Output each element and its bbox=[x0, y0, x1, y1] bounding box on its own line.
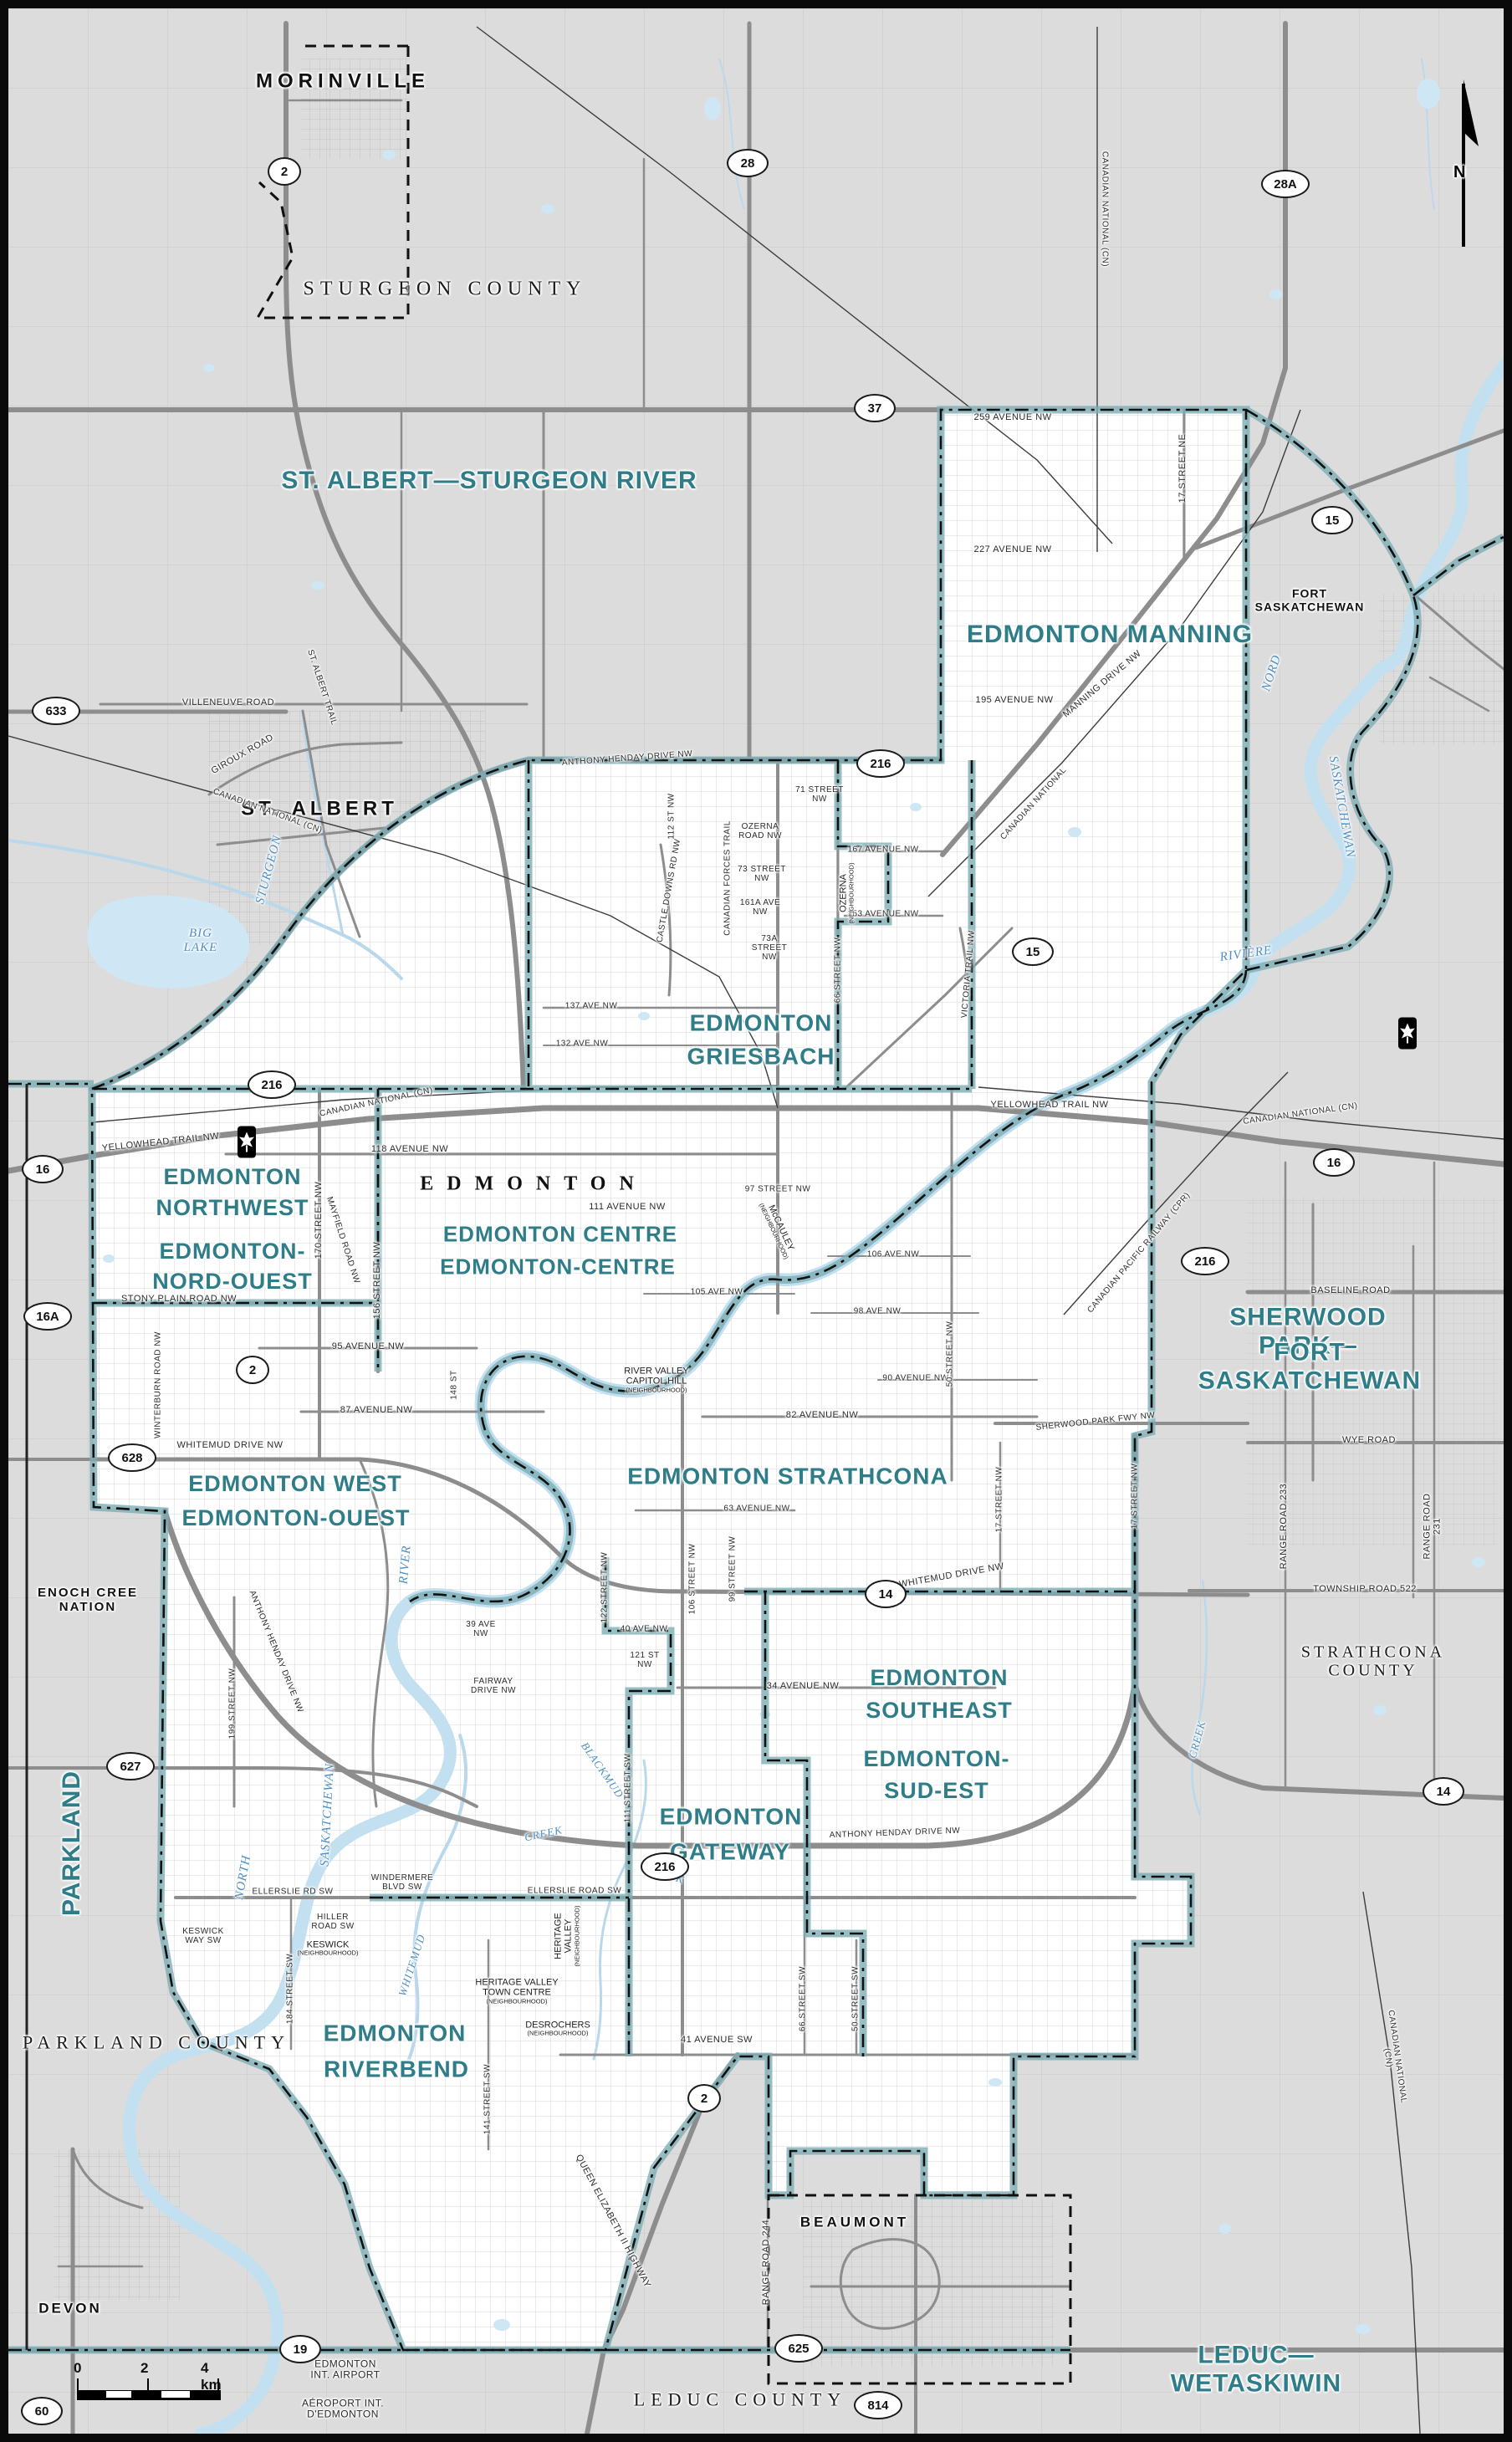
rail-label: CANADIAN NATIONAL bbox=[999, 766, 1068, 842]
district-label: EDMONTON CENTRE bbox=[443, 1222, 677, 1246]
street-label: WHITEMUD DRIVE NW bbox=[898, 1561, 1004, 1590]
neighbourhood-suffix: (NEIGHBOURHOOD) bbox=[525, 2031, 590, 2037]
district-label: RIVERBEND bbox=[324, 2056, 469, 2082]
highway-shield: 16 bbox=[22, 1155, 64, 1183]
street-label: 106 AVE NW bbox=[867, 1249, 920, 1259]
north-label: N bbox=[1453, 163, 1465, 181]
street-label: 66 STREET SW bbox=[798, 1966, 807, 2031]
district-label: EDMONTON MANNING bbox=[967, 621, 1253, 649]
street-label: QUEEN ELIZABETH II HIGHWAY bbox=[574, 2153, 653, 2290]
nbhd-label: OZERNA(NEIGHBOURHOOD) bbox=[839, 863, 856, 924]
scale-tick-0: 0 bbox=[74, 2360, 81, 2377]
district-label: ST. ALBERT—STURGEON RIVER bbox=[281, 467, 697, 495]
city-label: MORINVILLE bbox=[256, 71, 430, 94]
street-label: 170 STREET NW bbox=[314, 1182, 324, 1259]
street-label: 111 STREET SW bbox=[623, 1754, 632, 1823]
street-label: RANGE ROAD 233 bbox=[1279, 1484, 1289, 1569]
street-label: 17 STREET NW bbox=[1130, 1464, 1139, 1530]
district-label: SUD-EST bbox=[884, 1778, 989, 1803]
nbhd-label: RIVER VALLEY CAPITOL HILL(NEIGHBOURHOOD) bbox=[624, 1366, 688, 1393]
scale-tick-mark bbox=[147, 2378, 149, 2390]
street-label: ELLERSLIE ROAD SW bbox=[528, 1886, 621, 1895]
highway-shield: 2 bbox=[268, 157, 301, 186]
street-label: GIROUX ROAD bbox=[210, 733, 276, 777]
street-label: 199 STREET NW bbox=[227, 1668, 237, 1740]
street-label: FAIRWAY DRIVE NW bbox=[471, 1677, 516, 1695]
street-label: OZERNA ROAD NW bbox=[738, 822, 782, 840]
water-label: RIVIÈRE bbox=[1219, 943, 1274, 964]
street-label: ANTHONY HENDAY DRIVE NW bbox=[247, 1589, 304, 1714]
street-label: 112 ST NW bbox=[667, 793, 676, 839]
city-label: EDMONTON bbox=[420, 1173, 647, 1196]
highway-shield: 15 bbox=[1012, 937, 1054, 966]
street-label: 66 STREET NW bbox=[833, 937, 842, 1004]
street-label: 259 AVENUE NW bbox=[973, 412, 1051, 422]
street-label: 17 STREET NW bbox=[994, 1467, 1004, 1533]
highway-shield: 14 bbox=[865, 1580, 907, 1608]
street-label: EDMONTON INT. AIRPORT bbox=[310, 2359, 380, 2382]
park-icon bbox=[237, 1126, 257, 1163]
district-label: EDMONTON bbox=[163, 1164, 301, 1189]
water-label: SASKATCHEWAN bbox=[318, 1763, 337, 1867]
scale-bar: 0 2 4 km bbox=[74, 2360, 232, 2412]
highway-shield: 216 bbox=[641, 1852, 689, 1881]
street-label: ST. ALBERT TRAIL bbox=[305, 648, 339, 726]
water-label: BIG LAKE bbox=[184, 927, 218, 955]
street-label: 141 STREET SW bbox=[483, 2064, 492, 2134]
district-label: EDMONTON WEST bbox=[188, 1471, 402, 1496]
highway-shield: 628 bbox=[108, 1443, 156, 1472]
district-label: EDMONTON-CENTRE bbox=[440, 1254, 676, 1279]
street-label: BASELINE ROAD bbox=[1310, 1285, 1390, 1295]
street-label: 34 AVENUE NW bbox=[767, 1681, 840, 1691]
street-label: RANGE ROAD 244 bbox=[761, 2220, 771, 2305]
district-label: PARKLAND bbox=[58, 1770, 86, 1916]
street-label: 122 STREET NW bbox=[600, 1552, 609, 1623]
nbhd-label: KESWICK(NEIGHBOURHOOD) bbox=[298, 1940, 359, 1958]
rail-label: CANADIAN NATIONAL (CN) bbox=[319, 1086, 434, 1119]
map-canvas: ST. ALBERT—STURGEON RIVEREDMONTON MANNIN… bbox=[0, 0, 1512, 2442]
highway-shield: 625 bbox=[774, 2334, 823, 2363]
street-label: 87 AVENUE NW bbox=[340, 1405, 413, 1415]
street-label: MANNING DRIVE NW bbox=[1061, 648, 1143, 719]
scale-tick-mark bbox=[217, 2378, 219, 2390]
street-label: 106 STREET NW bbox=[687, 1544, 697, 1615]
street-label: 73 STREET NW bbox=[738, 865, 786, 883]
nbhd-label: HERITAGE VALLEY TOWN CENTRE(NEIGHBOURHOO… bbox=[475, 1977, 558, 2005]
district-label: GRIESBACH bbox=[687, 1043, 835, 1069]
highway-shield: 216 bbox=[856, 749, 905, 778]
street-label: KESWICK WAY SW bbox=[182, 1927, 224, 1945]
nbhd-label: McCAULEY(NEIGHBOURHOOD) bbox=[757, 1198, 799, 1261]
highway-shield: 60 bbox=[21, 2397, 63, 2425]
street-label: 132 AVE NW bbox=[556, 1039, 609, 1048]
neighbourhood-suffix: (NEIGHBOURHOOD) bbox=[574, 1906, 580, 1967]
neighbourhood-suffix: (NEIGHBOURHOOD) bbox=[475, 1998, 558, 2005]
rail-label: CANADIAN NATIONAL (CN) bbox=[1243, 1101, 1358, 1126]
street-label: 153 AVENUE NW bbox=[847, 909, 918, 918]
nbhd-label: HERITAGE VALLEY(NEIGHBOURHOOD) bbox=[553, 1906, 580, 1967]
street-label: RANGE ROAD 231 bbox=[1423, 1491, 1443, 1562]
scale-tick-2: 2 bbox=[140, 2360, 148, 2377]
water-label: NORTH bbox=[232, 1854, 254, 1901]
street-label: 137 AVE NW bbox=[565, 1001, 618, 1010]
street-label: 156 STREET NW bbox=[372, 1242, 382, 1320]
street-label: ANTHONY HENDAY DRIVE NW bbox=[562, 749, 693, 768]
street-label: 97 STREET NW bbox=[745, 1184, 811, 1193]
street-label: CASTLE DOWNS RD NW bbox=[656, 838, 683, 943]
highway-shield: 2 bbox=[687, 2084, 721, 2112]
county-label: STURGEON COUNTY bbox=[304, 278, 587, 301]
street-label: SHERWOOD PARK FWY NW bbox=[1035, 1411, 1156, 1433]
district-label: SOUTHEAST bbox=[866, 1698, 1013, 1723]
highway-shield: 633 bbox=[32, 697, 80, 725]
street-label: 99 STREET NW bbox=[728, 1536, 737, 1602]
district-label: EDMONTON bbox=[660, 1803, 803, 1829]
street-label: 98 AVE NW bbox=[854, 1306, 902, 1316]
street-label: 50 STREET NW bbox=[945, 1321, 954, 1387]
highway-shield: 15 bbox=[1311, 506, 1353, 534]
street-label: 40 AVE NW bbox=[621, 1624, 668, 1633]
county-label: LEDUC COUNTY bbox=[634, 2390, 847, 2411]
highway-shield: 216 bbox=[248, 1070, 296, 1099]
street-label: 148 ST bbox=[449, 1370, 458, 1399]
highway-shield: 814 bbox=[854, 2391, 902, 2419]
district-label: EDMONTON- bbox=[160, 1239, 306, 1264]
street-label: 90 AVENUE NW bbox=[882, 1373, 948, 1382]
street-label: 184 STREET SW bbox=[285, 1954, 294, 2024]
highway-shield: 28 bbox=[727, 149, 769, 177]
street-label: 111 AVENUE NW bbox=[589, 1202, 665, 1212]
street-label: MAYFIELD ROAD NW bbox=[324, 1196, 361, 1285]
city-label: DEVON bbox=[38, 2300, 101, 2316]
district-label: EDMONTON bbox=[870, 1665, 1008, 1690]
street-label: 41 AVENUE SW bbox=[681, 2035, 753, 2045]
county-label: STRATHCONA COUNTY bbox=[1301, 1643, 1445, 1681]
highway-shield: 28A bbox=[1261, 170, 1310, 198]
highway-shield: 2 bbox=[236, 1356, 269, 1384]
street-label: STONY PLAIN ROAD NW bbox=[121, 1294, 237, 1304]
scale-bar-strip bbox=[77, 2390, 221, 2400]
street-label: ELLERSLIE RD SW bbox=[253, 1887, 334, 1896]
district-label: EDMONTON- bbox=[864, 1746, 1010, 1771]
label-layer: ST. ALBERT—STURGEON RIVEREDMONTON MANNIN… bbox=[8, 8, 1504, 2434]
street-label: WYE ROAD bbox=[1342, 1435, 1396, 1445]
highway-shield: 19 bbox=[279, 2335, 321, 2363]
scale-tick-4: 4 km bbox=[201, 2360, 232, 2393]
street-label: CANADIAN FORCES TRAIL bbox=[723, 820, 732, 936]
district-label: GATEWAY bbox=[670, 1838, 790, 1864]
highway-shield: 627 bbox=[106, 1752, 155, 1780]
street-label: HILLER ROAD SW bbox=[311, 1913, 354, 1931]
street-label: 82 AVENUE NW bbox=[786, 1410, 859, 1420]
water-label: STURGEON bbox=[253, 834, 285, 906]
district-label: LEDUC—WETASKIWIN bbox=[1132, 2341, 1380, 2397]
scale-bar-segment bbox=[161, 2391, 190, 2398]
district-label: EDMONTON STRATHCONA bbox=[627, 1463, 948, 1489]
district-label: EDMONTON-OUEST bbox=[181, 1505, 410, 1530]
street-label: TOWNSHIP ROAD 522 bbox=[1313, 1584, 1417, 1594]
street-label: 227 AVENUE NW bbox=[973, 544, 1051, 554]
neighbourhood-suffix: (NEIGHBOURHOOD) bbox=[849, 863, 856, 924]
district-label: EDMONTON bbox=[690, 1009, 833, 1035]
street-label: AÉROPORT INT. D'EDMONTON bbox=[302, 2399, 384, 2421]
highway-shield: 16 bbox=[1313, 1148, 1355, 1177]
neighbourhood-suffix: (NEIGHBOURHOOD) bbox=[298, 1950, 359, 1957]
district-label: NORTHWEST bbox=[156, 1195, 309, 1220]
city-label: ENOCH CREE NATION bbox=[38, 1586, 138, 1615]
highway-shield: 216 bbox=[1181, 1247, 1229, 1275]
street-label: 50 STREET SW bbox=[850, 1966, 860, 2031]
street-label: 39 AVE NW bbox=[466, 1620, 496, 1638]
rail-label: CANADIAN NATIONAL (CN) bbox=[1376, 2001, 1410, 2114]
north-arrow: N bbox=[1430, 59, 1497, 259]
street-label: 71 STREET NW bbox=[795, 785, 844, 804]
neighbourhood-suffix: (NEIGHBOURHOOD) bbox=[757, 1203, 789, 1261]
rail-label: CANADIAN PACIFIC RAILWAY (CPR) bbox=[1085, 1191, 1192, 1316]
scale-tick-mark bbox=[77, 2378, 79, 2390]
scale-bar-segment bbox=[106, 2391, 131, 2398]
street-label: 161A AVE NW bbox=[740, 898, 780, 917]
rail-label: CANADIAN NATIONAL (CN) bbox=[1100, 151, 1109, 267]
district-label: FORT SASKATCHEWAN bbox=[1198, 1338, 1421, 1394]
street-label: YELLOWHEAD TRAIL NW bbox=[101, 1132, 219, 1154]
district-label: NORD-OUEST bbox=[152, 1269, 313, 1294]
highway-shield: 16A bbox=[23, 1302, 72, 1331]
street-label: 167 AVENUE NW bbox=[847, 845, 918, 854]
highway-shield: 14 bbox=[1423, 1777, 1464, 1806]
street-label: VILLENEUVE ROAD bbox=[182, 697, 274, 708]
district-label: EDMONTON bbox=[324, 2020, 467, 2046]
street-label: 73A STREET NW bbox=[752, 934, 787, 963]
water-label: NORD bbox=[1259, 653, 1285, 693]
street-label: VICTORIA TRAIL NW bbox=[960, 930, 977, 1019]
water-label: BLACKMUD bbox=[579, 1740, 626, 1801]
street-label: 105 AVE NW bbox=[691, 1287, 743, 1296]
water-label: CREEK bbox=[524, 1824, 564, 1844]
street-label: ANTHONY HENDAY DRIVE NW bbox=[830, 1826, 961, 1841]
street-label: WINTERBURN ROAD NW bbox=[153, 1331, 162, 1438]
water-label: RIVER bbox=[397, 1545, 415, 1585]
water-label: SASKATCHEWAN bbox=[1326, 755, 1357, 860]
highway-shield: 37 bbox=[854, 394, 896, 422]
north-arrow-icon bbox=[1430, 59, 1497, 259]
water-label: WHITEMUD bbox=[396, 1933, 428, 1998]
street-label: WINDERMERE BLVD SW bbox=[371, 1873, 433, 1892]
street-label: 17 STREET NE bbox=[1177, 434, 1188, 503]
nbhd-label: DESROCHERS(NEIGHBOURHOOD) bbox=[525, 2021, 590, 2038]
park-icon bbox=[1397, 1017, 1417, 1055]
street-label: 63 AVENUE NW bbox=[723, 1504, 789, 1513]
city-label: FORT SASKATCHEWAN bbox=[1255, 587, 1365, 613]
street-label: 195 AVENUE NW bbox=[975, 695, 1053, 705]
street-label: WHITEMUD DRIVE NW bbox=[176, 1440, 283, 1450]
street-label: 118 AVENUE NW bbox=[371, 1144, 448, 1154]
street-label: 95 AVENUE NW bbox=[332, 1341, 405, 1351]
street-label: 121 ST NW bbox=[630, 1651, 659, 1669]
street-label: YELLOWHEAD TRAIL NW bbox=[991, 1100, 1109, 1110]
city-label: BEAUMONT bbox=[800, 2214, 909, 2230]
water-label: CREEK bbox=[1187, 1719, 1208, 1760]
neighbourhood-suffix: (NEIGHBOURHOOD) bbox=[624, 1387, 688, 1393]
county-label: PARKLAND COUNTY bbox=[23, 2033, 290, 2054]
